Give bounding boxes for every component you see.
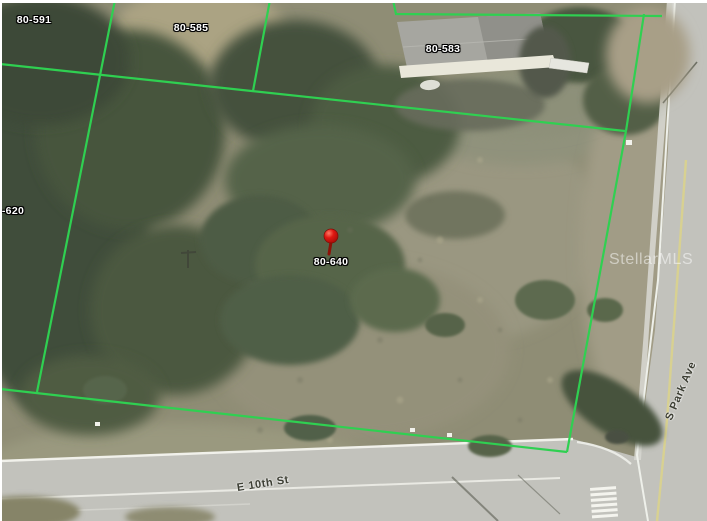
parcel-label-80-591: 80-591	[17, 14, 52, 26]
listing-pin[interactable]	[324, 229, 338, 254]
parcel-label-80-583: 80-583	[426, 43, 461, 55]
aerial-map[interactable]: 80-59180-58580-583-62080-640E 10th StS P…	[0, 0, 707, 521]
parcel-label-80-585: 80-585	[174, 22, 209, 34]
watermark: StellarMLS	[609, 251, 693, 269]
parcel-boundary-line	[0, 389, 567, 452]
image-border-top	[0, 0, 707, 3]
parcel-overlay	[0, 0, 707, 521]
pin-stem	[329, 242, 331, 254]
parcel-boundary-line	[0, 64, 625, 131]
parcel-label-80-640: 80-640	[314, 256, 349, 268]
parcel-boundary-line	[567, 131, 626, 452]
parcel-boundary-line	[253, 0, 270, 91]
image-border-left	[0, 0, 2, 521]
parcel-boundary-line	[626, 14, 644, 131]
parcel-label-620: -620	[2, 205, 24, 217]
parcel-boundary-line	[37, 0, 115, 392]
pin-head	[324, 229, 338, 243]
